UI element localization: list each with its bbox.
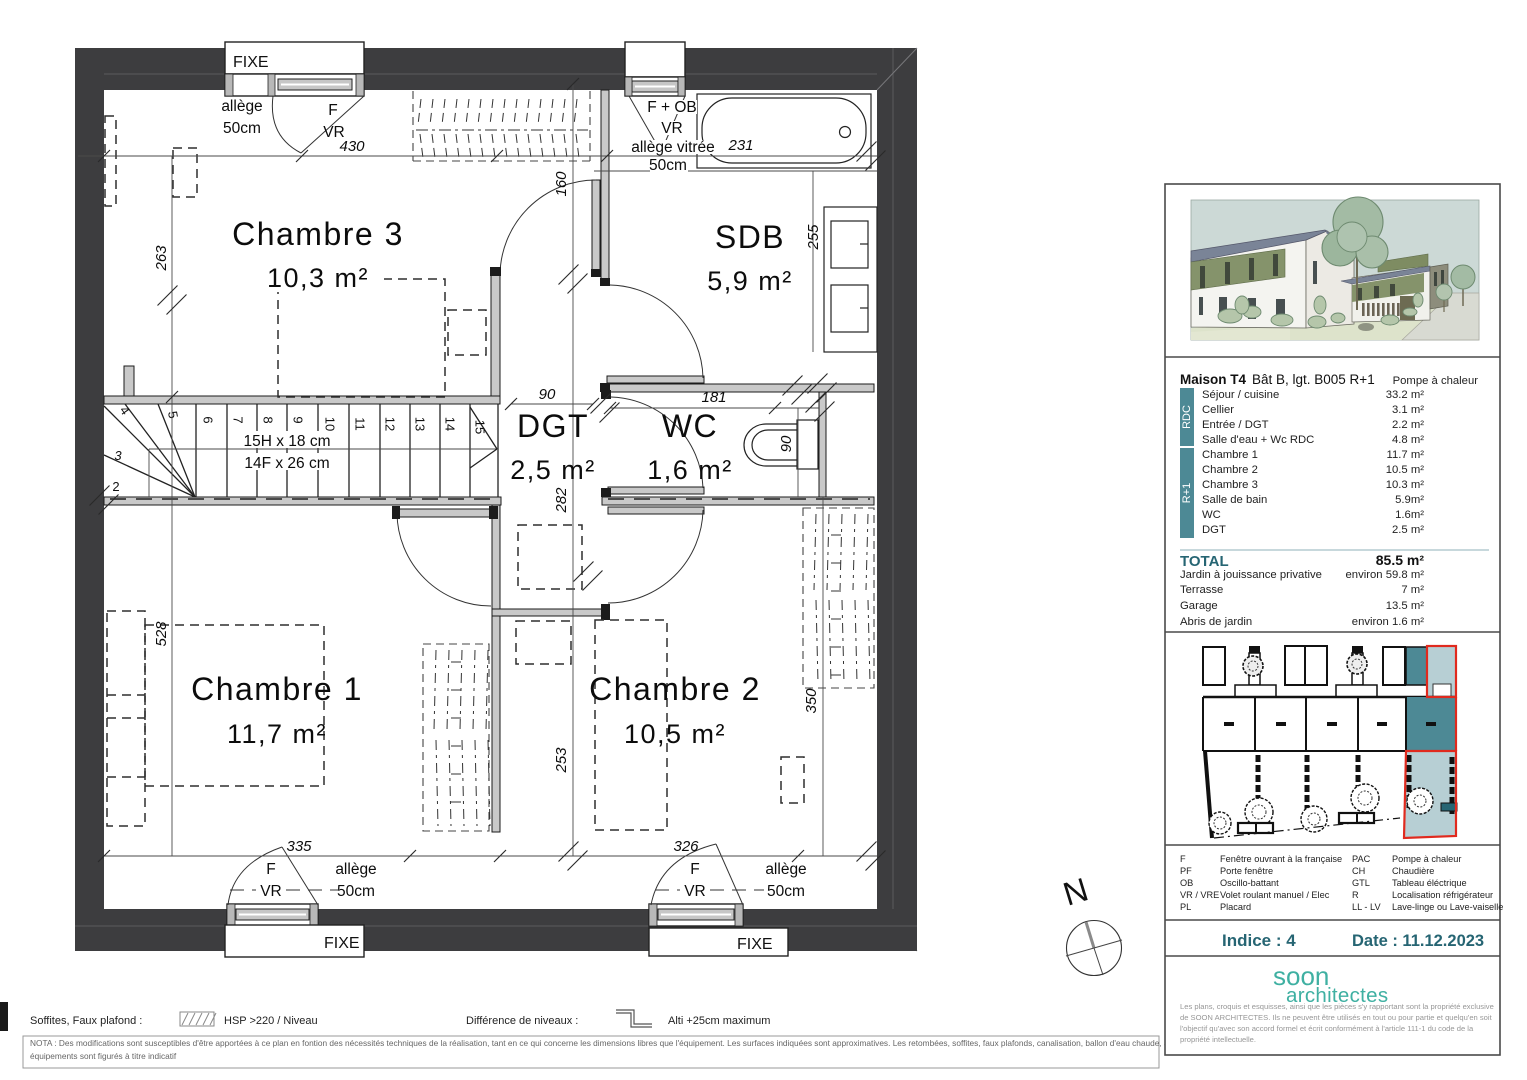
svg-text:Chaudière: Chaudière (1392, 866, 1434, 876)
svg-text:R: R (1352, 890, 1359, 900)
svg-text:50cm: 50cm (767, 883, 805, 900)
svg-text:TOTAL: TOTAL (1180, 553, 1229, 570)
svg-text:environ 59.8 m²: environ 59.8 m² (1346, 569, 1425, 581)
svg-text:2.5 m²: 2.5 m² (1392, 524, 1424, 536)
svg-text:11,7 m²: 11,7 m² (227, 719, 327, 749)
svg-text:231: 231 (727, 137, 753, 154)
svg-text:4.8 m²: 4.8 m² (1392, 434, 1424, 446)
svg-text:2: 2 (112, 479, 119, 494)
svg-text:F: F (690, 861, 699, 878)
svg-text:7: 7 (231, 416, 246, 423)
svg-text:Porte fenêtre: Porte fenêtre (1220, 866, 1273, 876)
svg-text:VR: VR (323, 124, 345, 141)
svg-text:253: 253 (553, 747, 570, 774)
svg-text:4: 4 (117, 403, 133, 418)
svg-text:50cm: 50cm (223, 120, 261, 137)
svg-text:Placard: Placard (1220, 902, 1251, 912)
svg-text:6: 6 (201, 416, 216, 423)
svg-text:VR / VRE: VR / VRE (1180, 890, 1219, 900)
svg-text:N: N (1059, 870, 1093, 912)
svg-text:Jardin à jouissance privative: Jardin à jouissance privative (1180, 569, 1322, 581)
svg-text:15: 15 (473, 420, 488, 434)
svg-text:Soffites, Faux plafond :: Soffites, Faux plafond : (30, 1015, 142, 1027)
svg-text:FIXE: FIXE (324, 935, 360, 952)
svg-text:Pompe à chaleur: Pompe à chaleur (1392, 854, 1461, 864)
svg-text:1,6 m²: 1,6 m² (647, 455, 733, 485)
svg-text:8: 8 (261, 416, 276, 423)
svg-text:Localisation réfrigérateur: Localisation réfrigérateur (1392, 890, 1493, 900)
svg-text:2.2 m²: 2.2 m² (1392, 419, 1424, 431)
svg-text:l'objectif qu'avec son accord: l'objectif qu'avec son accord formel et … (1180, 1024, 1474, 1033)
svg-text:13: 13 (413, 417, 428, 431)
svg-text:Volet roulant manuel / Elec: Volet roulant manuel / Elec (1220, 890, 1330, 900)
svg-text:10.5 m²: 10.5 m² (1386, 464, 1425, 476)
svg-text:environ 1.6 m²: environ 1.6 m² (1352, 616, 1424, 628)
svg-text:allège: allège (335, 861, 376, 878)
svg-text:allège vitrée: allège vitrée (631, 139, 715, 156)
svg-text:50cm: 50cm (649, 157, 687, 174)
svg-text:F: F (1180, 854, 1186, 864)
svg-text:DGT: DGT (517, 408, 589, 444)
svg-text:282: 282 (553, 487, 570, 514)
svg-text:Lave-linge ou Lave-vaiselle: Lave-linge ou Lave-vaiselle (1392, 902, 1503, 912)
svg-text:160: 160 (553, 171, 570, 197)
svg-text:5,9 m²: 5,9 m² (707, 266, 793, 296)
svg-text:Salle d'eau + Wc RDC: Salle d'eau + Wc RDC (1202, 434, 1314, 446)
svg-text:PF: PF (1180, 866, 1192, 876)
svg-text:WC: WC (662, 408, 718, 444)
svg-text:12: 12 (383, 417, 398, 431)
svg-text:Salle de bain: Salle de bain (1202, 494, 1267, 506)
svg-text:VR: VR (260, 883, 282, 900)
svg-text:Chambre 2: Chambre 2 (1202, 464, 1258, 476)
svg-text:VR: VR (684, 883, 706, 900)
svg-text:Garage: Garage (1180, 600, 1218, 612)
svg-text:85.5 m²: 85.5 m² (1376, 552, 1425, 568)
svg-text:9: 9 (291, 416, 306, 423)
svg-text:WC: WC (1202, 509, 1221, 521)
svg-text:3: 3 (114, 448, 122, 463)
svg-text:PAC: PAC (1352, 854, 1371, 864)
svg-text:11: 11 (353, 417, 368, 431)
svg-text:90: 90 (778, 435, 795, 452)
svg-text:Oscillo-battant: Oscillo-battant (1220, 878, 1279, 888)
svg-text:5.9m²: 5.9m² (1395, 494, 1424, 506)
svg-text:14F x 26 cm: 14F x 26 cm (244, 455, 329, 472)
svg-text:Les plans, croquis et esquisse: Les plans, croquis et esquisses, ainsi q… (1180, 1002, 1494, 1011)
svg-text:Tableau éléctrique: Tableau éléctrique (1392, 878, 1467, 888)
svg-text:LL - LV: LL - LV (1352, 902, 1381, 912)
svg-text:181: 181 (701, 389, 726, 406)
svg-text:1.6m²: 1.6m² (1395, 509, 1424, 521)
svg-text:90: 90 (539, 386, 556, 403)
svg-text:HSP >220 / Niveau: HSP >220 / Niveau (224, 1015, 318, 1027)
svg-text:50cm: 50cm (337, 883, 375, 900)
svg-text:PL: PL (1180, 902, 1191, 912)
svg-text:équipements sont figurés à tit: équipements sont figurés à titre indicat… (30, 1051, 177, 1061)
svg-text:10.3 m²: 10.3 m² (1386, 479, 1425, 491)
svg-text:SDB: SDB (715, 219, 785, 255)
svg-text:326: 326 (673, 838, 699, 855)
svg-text:F + OB: F + OB (647, 99, 697, 116)
svg-text:350: 350 (803, 688, 820, 714)
svg-text:Fenêtre ouvrant à la française: Fenêtre ouvrant à la française (1220, 854, 1342, 864)
svg-text:Terrasse: Terrasse (1180, 584, 1223, 596)
svg-text:263: 263 (153, 245, 170, 272)
svg-text:de SOON ARCHITECTES. Ils ne pe: de SOON ARCHITECTES. Ils ne peuvent être… (1180, 1013, 1493, 1022)
svg-text:R+1: R+1 (1181, 483, 1193, 504)
svg-text:Chambre 1: Chambre 1 (191, 671, 363, 707)
svg-text:335: 335 (286, 838, 312, 855)
svg-text:Séjour / cuisine: Séjour / cuisine (1202, 389, 1279, 401)
svg-text:Alti +25cm maximum: Alti +25cm maximum (668, 1015, 770, 1027)
svg-text:F: F (328, 102, 337, 119)
svg-text:FIXE: FIXE (737, 936, 773, 953)
svg-text:Chambre 3: Chambre 3 (1202, 479, 1258, 491)
svg-text:10,3 m²: 10,3 m² (267, 263, 369, 293)
svg-text:7 m²: 7 m² (1401, 584, 1424, 596)
svg-text:Maison T4: Maison T4 (1180, 372, 1247, 387)
svg-text:14: 14 (443, 417, 458, 431)
svg-text:Différence de niveaux :: Différence de niveaux : (466, 1015, 578, 1027)
svg-text:FIXE: FIXE (233, 54, 269, 71)
svg-text:propriété intellectuelle.: propriété intellectuelle. (1180, 1035, 1256, 1044)
svg-text:GTL: GTL (1352, 878, 1370, 888)
svg-text:13.5 m²: 13.5 m² (1386, 600, 1425, 612)
svg-text:3.1 m²: 3.1 m² (1392, 404, 1424, 416)
svg-text:11.7 m²: 11.7 m² (1387, 449, 1425, 461)
svg-text:10,5 m²: 10,5 m² (624, 719, 726, 749)
svg-text:2,5 m²: 2,5 m² (510, 455, 596, 485)
svg-text:CH: CH (1352, 866, 1365, 876)
svg-text:RDC: RDC (1181, 405, 1193, 429)
svg-text:Entrée / DGT: Entrée / DGT (1202, 419, 1269, 431)
svg-text:Indice : 4: Indice : 4 (1222, 931, 1296, 950)
svg-text:Cellier: Cellier (1202, 404, 1234, 416)
svg-text:Chambre 3: Chambre 3 (232, 216, 404, 252)
svg-text:NOTA : Des modifications sont: NOTA : Des modifications sont susceptibl… (30, 1038, 1268, 1048)
svg-text:F: F (266, 861, 275, 878)
svg-text:Abris de jardin: Abris de jardin (1180, 616, 1252, 628)
svg-text:255: 255 (805, 224, 822, 251)
svg-text:Bât B, lgt. B005 R+1: Bât B, lgt. B005 R+1 (1252, 372, 1375, 387)
svg-text:Chambre 2: Chambre 2 (589, 671, 761, 707)
svg-text:528: 528 (153, 621, 170, 647)
svg-text:Date : 11.12.2023: Date : 11.12.2023 (1352, 932, 1484, 950)
svg-text:allège: allège (221, 98, 262, 115)
svg-text:33.2 m²: 33.2 m² (1386, 389, 1425, 401)
svg-text:OB: OB (1180, 878, 1193, 888)
svg-text:5: 5 (165, 410, 181, 420)
svg-text:VR: VR (661, 120, 683, 137)
svg-text:10: 10 (323, 417, 338, 431)
svg-text:Chambre 1: Chambre 1 (1202, 449, 1258, 461)
svg-text:Pompe à chaleur: Pompe à chaleur (1393, 375, 1479, 387)
svg-text:15H x 18 cm: 15H x 18 cm (243, 433, 330, 450)
svg-text:DGT: DGT (1202, 524, 1226, 536)
svg-text:allège: allège (765, 861, 806, 878)
